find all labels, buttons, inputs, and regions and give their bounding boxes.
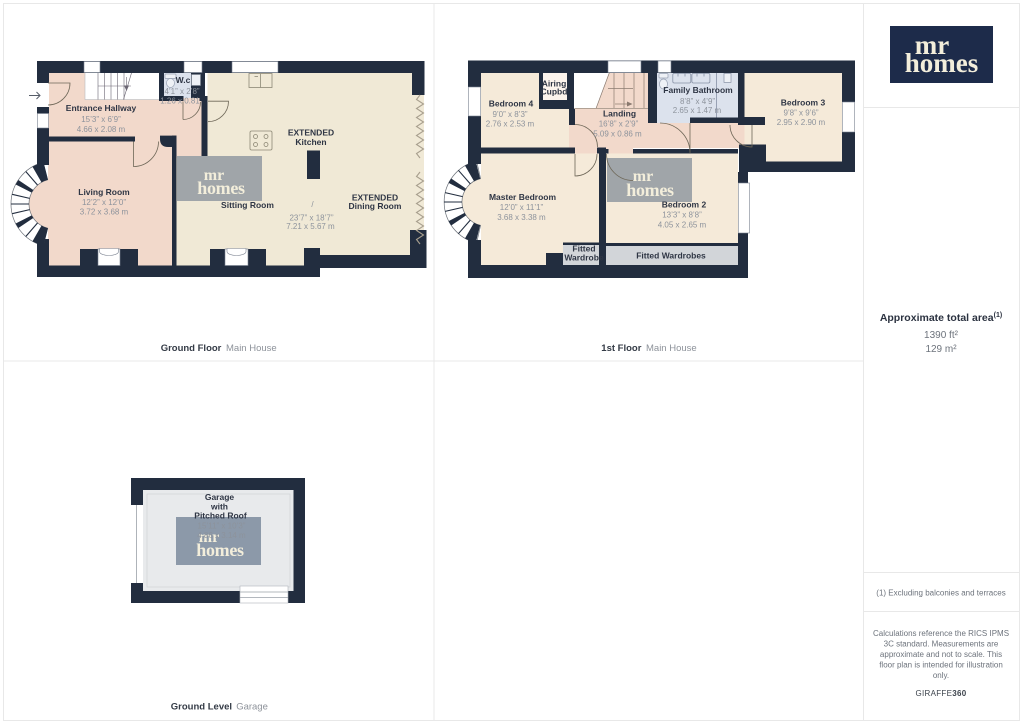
svg-text:4.05 x 2.65 m: 4.05 x 2.65 m	[658, 221, 707, 230]
svg-text:(1) Excluding balconies and te: (1) Excluding balconies and terraces	[876, 589, 1005, 598]
svg-text:Entrance Hallway: Entrance Hallway	[66, 103, 137, 113]
svg-text:Garage: Garage	[205, 492, 235, 502]
svg-text:2.76 x 2.53 m: 2.76 x 2.53 m	[486, 120, 535, 129]
svg-text:16’8” x 2’9”: 16’8” x 2’9”	[599, 120, 639, 129]
svg-text:Family Bathroom: Family Bathroom	[663, 85, 733, 95]
svg-text:1st Floor: 1st Floor	[601, 343, 641, 354]
svg-text:homes: homes	[905, 48, 979, 78]
svg-text:9’0” x 8’3”: 9’0” x 8’3”	[492, 110, 527, 119]
svg-text:4.66 x 2.08 m: 4.66 x 2.08 m	[77, 125, 126, 134]
svg-text:approximate and not to scale.: approximate and not to scale. This	[880, 650, 1002, 659]
svg-text:15’11” x 10’3”: 15’11” x 10’3”	[198, 522, 246, 531]
svg-text:GIRAFFE360: GIRAFFE360	[915, 689, 966, 698]
svg-text:Landing: Landing	[603, 109, 636, 119]
svg-text:Main House: Main House	[226, 343, 277, 354]
svg-text:homes: homes	[626, 180, 674, 200]
svg-text:Approximate total area(1): Approximate total area(1)	[880, 312, 1002, 324]
svg-text:Fitted Wardrobes: Fitted Wardrobes	[636, 251, 706, 261]
svg-text:7.21 x 5.67 m: 7.21 x 5.67 m	[286, 222, 335, 231]
svg-text:Bedroom 4: Bedroom 4	[489, 99, 534, 109]
svg-text:Kitchen: Kitchen	[295, 137, 326, 147]
svg-text:homes: homes	[197, 178, 245, 198]
svg-text:Master Bedroom: Master Bedroom	[489, 192, 557, 202]
svg-text:Living Room: Living Room	[78, 187, 130, 197]
svg-text:Wardrobe: Wardrobe	[564, 253, 604, 263]
svg-text:Dining Room: Dining Room	[349, 201, 402, 211]
svg-text:8’8” x 4’9”: 8’8” x 4’9”	[680, 97, 715, 106]
svg-text:13’3” x 8’8”: 13’3” x 8’8”	[662, 211, 702, 220]
svg-text:homes: homes	[196, 540, 244, 560]
svg-text:129 m²: 129 m²	[925, 344, 957, 355]
svg-text:Bedroom 3: Bedroom 3	[781, 98, 826, 108]
svg-text:12’2” x 12’0”: 12’2” x 12’0”	[82, 198, 126, 207]
svg-text:1390 ft²: 1390 ft²	[924, 330, 959, 341]
svg-text:only.: only.	[933, 671, 949, 680]
svg-text:5.09 x 0.86 m: 5.09 x 0.86 m	[593, 130, 642, 139]
svg-text:Cupbd: Cupbd	[541, 87, 568, 97]
svg-text:3C standard. Measurements are: 3C standard. Measurements are	[884, 640, 999, 649]
svg-text:Garage: Garage	[236, 702, 268, 713]
svg-text:Sitting Room: Sitting Room	[221, 200, 274, 210]
svg-text:Ground Floor: Ground Floor	[161, 343, 222, 354]
svg-text:12’0” x 11’1”: 12’0” x 11’1”	[500, 203, 544, 212]
svg-text:Calculations reference the RIC: Calculations reference the RICS IPMS	[873, 629, 1009, 638]
svg-text:2.65 x 1.47 m: 2.65 x 1.47 m	[673, 106, 722, 115]
svg-text:Bedroom 2: Bedroom 2	[662, 200, 707, 210]
svg-text:floor plan is intended for ill: floor plan is intended for illustration	[879, 661, 1003, 670]
svg-text:Pitched Roof: Pitched Roof	[194, 511, 247, 521]
svg-text:Ground Level: Ground Level	[171, 702, 232, 713]
svg-text:3.72 x 3.68 m: 3.72 x 3.68 m	[80, 208, 129, 217]
svg-text:EXTENDED: EXTENDED	[288, 128, 334, 138]
svg-text:15’3” x 6’9”: 15’3” x 6’9”	[81, 115, 121, 124]
svg-text:1.26 x 0.81: 1.26 x 0.81	[160, 97, 200, 106]
svg-text:9’8” x 9’6”: 9’8” x 9’6”	[783, 109, 818, 118]
svg-text:W.c: W.c	[176, 75, 191, 85]
svg-text:3.68 x 3.38 m: 3.68 x 3.38 m	[497, 213, 546, 222]
svg-text:4.86 x 3.14 m: 4.86 x 3.14 m	[197, 531, 246, 540]
svg-text:4’1” x 2’8”: 4’1” x 2’8”	[164, 87, 199, 96]
svg-text:2.95 x 2.90 m: 2.95 x 2.90 m	[777, 118, 826, 127]
svg-text:Main House: Main House	[646, 343, 697, 354]
